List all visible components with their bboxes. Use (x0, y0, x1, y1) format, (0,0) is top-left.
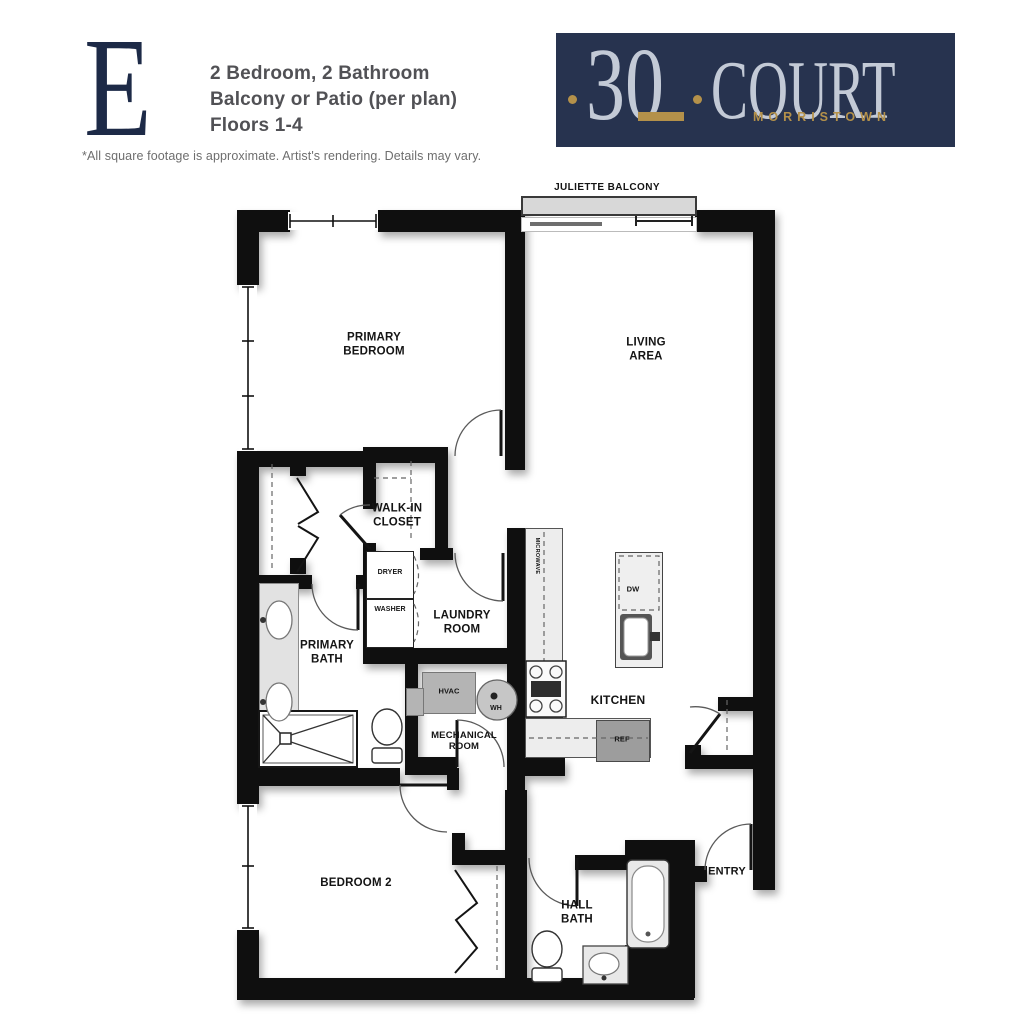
wall-segment (237, 210, 259, 285)
label-juliette-balcony: JULIETTE BALCONY (554, 182, 660, 194)
label-bedroom-2: BEDROOM 2 (320, 877, 391, 891)
wall-segment (420, 548, 453, 560)
wall-segment (363, 447, 376, 509)
wall-segment (525, 758, 565, 776)
window (288, 212, 378, 230)
kitchen-island (615, 552, 663, 668)
wall-segment (435, 447, 448, 557)
label-washer: WASHER (374, 606, 405, 614)
wall-segment (290, 558, 306, 574)
label-hall-bath: HALL BATH (561, 899, 593, 926)
wall-segment (718, 697, 775, 711)
label-refrigerator: REF (614, 736, 629, 745)
balcony-door-track (521, 217, 697, 232)
wall-segment (625, 945, 670, 998)
kitchen-counter (525, 528, 563, 718)
label-microwave: MICROWAVE (534, 538, 540, 575)
label-mechanical-room: MECHANICAL ROOM (431, 730, 497, 752)
floorplan-walls (0, 0, 1020, 1020)
wall-segment (378, 210, 507, 232)
wall-segment (665, 866, 707, 882)
label-primary-bath: PRIMARY BATH (300, 639, 354, 666)
hvac-unit (406, 688, 424, 716)
wall-segment (575, 855, 628, 870)
label-living-area: LIVING AREA (626, 336, 666, 363)
window (239, 804, 257, 930)
label-entry: ENTRY (708, 866, 746, 879)
wall-segment (290, 460, 306, 476)
window (239, 285, 257, 451)
label-dryer: DRYER (378, 569, 403, 577)
wall-segment (237, 451, 259, 804)
wall-segment (505, 790, 527, 998)
shower (258, 710, 358, 768)
juliette-balcony (521, 196, 697, 216)
label-hvac: HVAC (438, 688, 459, 697)
wall-segment (688, 755, 775, 769)
wall-segment (363, 648, 523, 664)
wall-segment (253, 451, 365, 467)
label-laundry-room: LAUNDRY ROOM (433, 609, 490, 636)
wall-segment (685, 745, 701, 769)
label-kitchen: KITCHEN (591, 693, 646, 707)
wall-segment (505, 210, 525, 470)
wall-segment (447, 768, 459, 790)
label-water-heater: WH (490, 705, 502, 713)
wall-segment (452, 833, 465, 865)
label-primary-bedroom: PRIMARY BEDROOM (343, 331, 404, 358)
label-dishwasher: DW (627, 586, 640, 595)
wall-segment (237, 768, 400, 786)
wall-segment (753, 210, 775, 890)
label-walk-in-closet: WALK-IN CLOSET (372, 502, 423, 529)
